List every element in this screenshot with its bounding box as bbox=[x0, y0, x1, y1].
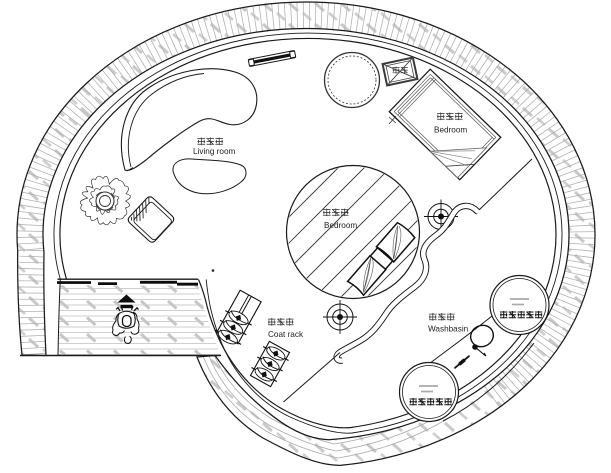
svg-text:Living room: Living room bbox=[193, 147, 236, 156]
svg-text:Bedroom: Bedroom bbox=[434, 126, 467, 135]
svg-text:Bedroom: Bedroom bbox=[324, 221, 357, 230]
svg-text:Coat rack: Coat rack bbox=[268, 330, 304, 339]
svg-text:Washbasin: Washbasin bbox=[428, 325, 469, 334]
